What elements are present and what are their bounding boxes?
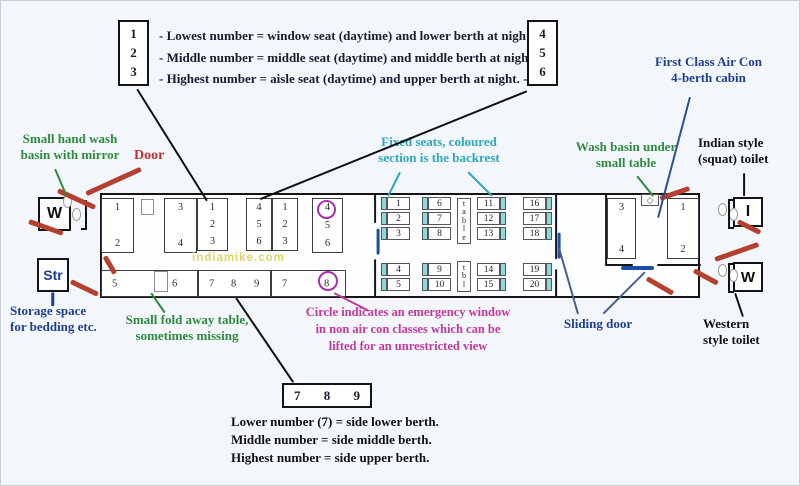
berth-number: 5 [325, 220, 330, 231]
fold-table-icon [141, 199, 154, 215]
seat-number-box: 4 [387, 263, 410, 276]
berth-number: 8 [231, 278, 236, 289]
end-box-label: Str [43, 267, 62, 283]
seat-number-box: 18 [523, 227, 546, 240]
legend-box-berths-456: 4 5 6 [527, 20, 558, 86]
berth-number: 6 [256, 236, 261, 247]
seat-4: 4 [381, 263, 410, 276]
seat-6: 6 [422, 197, 451, 210]
berth-box: 123 [197, 198, 228, 251]
seat-number-box: 20 [523, 278, 546, 291]
seat-2: 2 [381, 212, 410, 225]
toilet-fixture-icon [718, 264, 727, 277]
label-western-toilet: Western style toilet [703, 316, 798, 348]
legend-line-side-upper: Highest number = side upper berth. [231, 450, 429, 466]
coach-wall [374, 259, 376, 297]
fold-table-icon [154, 271, 168, 292]
legend-num: 3 [130, 64, 137, 80]
seat-number: 12 [484, 214, 494, 224]
seat-20: 20 [523, 278, 552, 291]
seat-backrest [546, 263, 552, 276]
seat-backrest [546, 227, 552, 240]
seat-19: 19 [523, 263, 552, 276]
berth-box: 12 [667, 198, 699, 259]
seat-number-box: 6 [428, 197, 451, 210]
seat-5: 5 [381, 278, 410, 291]
legend-num: 1 [130, 26, 137, 42]
seat-number: 17 [530, 214, 540, 224]
table-letter: l [463, 281, 465, 290]
seat-16: 16 [523, 197, 552, 210]
legend-num: 5 [539, 45, 546, 61]
seat-backrest [546, 197, 552, 210]
berth-number: 5 [256, 219, 261, 230]
berth-number: 1 [210, 202, 215, 213]
berth-number: 2 [210, 219, 215, 230]
berth-number: 3 [619, 202, 624, 213]
berth-box: 34 [607, 198, 636, 259]
berth-number: 5 [112, 278, 117, 289]
seat-number-box: 19 [523, 263, 546, 276]
label-indian-toilet: Indian style (squat) toilet [698, 135, 798, 167]
legend-num: 6 [539, 64, 546, 80]
berth-number: 4 [178, 238, 183, 249]
seat-number: 10 [435, 280, 445, 290]
berth-number: 6 [325, 238, 330, 249]
berth-number: 6 [172, 278, 177, 289]
label-emergency-window: Circle indicates an emergency window in … [299, 304, 517, 355]
berth-box: 123 [272, 198, 298, 251]
seat-number: 13 [484, 229, 494, 239]
line-to-storage [52, 292, 55, 306]
seat-13: 13 [477, 227, 506, 240]
legend-line-side-lower: Lower number (7) = side lower berth. [231, 414, 439, 430]
berth-number: 3 [210, 236, 215, 247]
seat-backrest [500, 212, 506, 225]
seat-number: 15 [484, 280, 494, 290]
berth-number: 4 [619, 244, 624, 255]
toilet-fixture-icon [72, 208, 81, 221]
seat-8: 8 [422, 227, 451, 240]
seat-18: 18 [523, 227, 552, 240]
seat-number: 18 [530, 229, 540, 239]
seat-backrest [500, 278, 506, 291]
seat-backrest [500, 197, 506, 210]
seat-number: 11 [484, 199, 493, 209]
seat-number: 16 [530, 199, 540, 209]
seat-17: 17 [523, 212, 552, 225]
end-box-label: W [47, 205, 62, 223]
legend-line-lowest: - Lowest number = window seat (daytime) … [159, 28, 541, 44]
coach-wall [555, 269, 557, 297]
seat-number: 1 [396, 199, 401, 209]
seat-backrest [546, 212, 552, 225]
toilet-fixture-icon [718, 203, 727, 216]
legend-line-middle: - Middle number = middle seat (daytime) … [159, 50, 544, 66]
berth-number: 9 [254, 278, 259, 289]
train-coach-seatmap-diagram: 1 2 3 - Lowest number = window seat (day… [0, 0, 800, 486]
seat-1: 1 [381, 197, 410, 210]
table-letter: e [462, 234, 466, 243]
label-sliding-door: Sliding door [552, 316, 644, 332]
seat-number-box: 3 [387, 227, 410, 240]
door-mark [70, 279, 99, 296]
label-small-hand-wash-basin: Small hand wash basin with mirror [9, 131, 131, 163]
legend-line-highest: - Highest number = aisle seat (daytime) … [159, 71, 527, 87]
end-box-label: W [741, 269, 755, 286]
legend-line-side-middle: Middle number = side middle berth. [231, 432, 432, 448]
table-box: table [457, 198, 471, 244]
seat-number: 14 [484, 265, 494, 275]
label-door: Door [134, 148, 164, 164]
seat-number: 2 [396, 214, 401, 224]
line-to-western-toilet [734, 293, 744, 318]
end-box-label: I [746, 203, 750, 221]
berth-number: 2 [680, 244, 685, 255]
seat-number-box: 1 [387, 197, 410, 210]
seat-number: 7 [437, 214, 442, 224]
berth-number: 1 [680, 202, 685, 213]
seat-12: 12 [477, 212, 506, 225]
seat-number: 6 [437, 199, 442, 209]
legend-num: 8 [324, 388, 331, 404]
seat-9: 9 [422, 263, 451, 276]
watermark: indiamike.com [192, 252, 285, 264]
sliding-door-marker [621, 266, 654, 269]
berth-box: 12 [101, 198, 134, 253]
seat-number-box: 11 [477, 197, 500, 210]
sliding-door-marker [376, 229, 379, 255]
berth-number: 7 [209, 278, 214, 289]
legend-box-side-berths-789: 7 8 9 [282, 383, 372, 408]
storage-box: Str [37, 258, 69, 292]
seat-number-box: 2 [387, 212, 410, 225]
berth-number: 3 [178, 202, 183, 213]
seat-backrest [500, 263, 506, 276]
seat-10: 10 [422, 278, 451, 291]
label-storage-space: Storage space for bedding etc. [10, 303, 130, 335]
seat-7: 7 [422, 212, 451, 225]
seat-3: 3 [381, 227, 410, 240]
berth-box: 34 [164, 198, 197, 253]
seat-backrest [546, 278, 552, 291]
label-wash-basin-under-table: Wash basin under small table [564, 139, 688, 171]
seat-number-box: 14 [477, 263, 500, 276]
coach-wall [657, 264, 701, 266]
table-box: tbl [457, 261, 471, 292]
berth-box: 456 [246, 198, 272, 251]
label-fold-away-table: Small fold away table, sometimes missing [113, 312, 261, 344]
seat-backrest [500, 227, 506, 240]
berth-number: 1 [282, 202, 287, 213]
berth-number: 3 [282, 236, 287, 247]
seat-number-box: 16 [523, 197, 546, 210]
berth-number: 4 [256, 202, 261, 213]
seat-number-box: 13 [477, 227, 500, 240]
seat-number: 5 [396, 280, 401, 290]
line-to-indian-toilet [743, 173, 745, 196]
legend-box-berths-123: 1 2 3 [118, 20, 149, 86]
seat-number: 9 [437, 265, 442, 275]
seat-number: 19 [530, 265, 540, 275]
berth-number: 7 [282, 278, 287, 289]
line-from-legend-123 [136, 88, 208, 201]
door-mark [85, 167, 142, 196]
berth-box: 789 [198, 270, 271, 297]
seat-number: 3 [396, 229, 401, 239]
door-frame-bracket [728, 199, 734, 229]
seat-11: 11 [477, 197, 506, 210]
label-first-class-cabin: First Class Air Con 4-berth cabin [631, 54, 786, 86]
seat-number: 4 [396, 265, 401, 275]
coach-wall [374, 193, 376, 223]
seat-number-box: 5 [387, 278, 410, 291]
wash-basin-icon: ◇ [641, 194, 659, 206]
label-fixed-seats: Fixed seats, coloured section is the bac… [369, 134, 509, 166]
seat-number-box: 10 [428, 278, 451, 291]
door-mark [714, 242, 758, 261]
seat-15: 15 [477, 278, 506, 291]
berth-number: 1 [115, 202, 120, 213]
seat-number-box: 15 [477, 278, 500, 291]
seat-number-box: 7 [428, 212, 451, 225]
seat-14: 14 [477, 263, 506, 276]
seat-number-box: 12 [477, 212, 500, 225]
emergency-window-circle [317, 200, 336, 219]
emergency-window-circle [318, 271, 338, 291]
berth-number: 2 [282, 219, 287, 230]
berth-number: 2 [115, 238, 120, 249]
legend-num: 2 [130, 45, 137, 61]
door-frame-bracket [728, 263, 734, 293]
seat-number-box: 9 [428, 263, 451, 276]
legend-num: 9 [354, 388, 361, 404]
legend-num: 7 [294, 388, 301, 404]
seat-number: 20 [530, 280, 540, 290]
seat-number-box: 8 [428, 227, 451, 240]
seat-number: 8 [437, 229, 442, 239]
seat-number-box: 17 [523, 212, 546, 225]
legend-num: 4 [539, 26, 546, 42]
